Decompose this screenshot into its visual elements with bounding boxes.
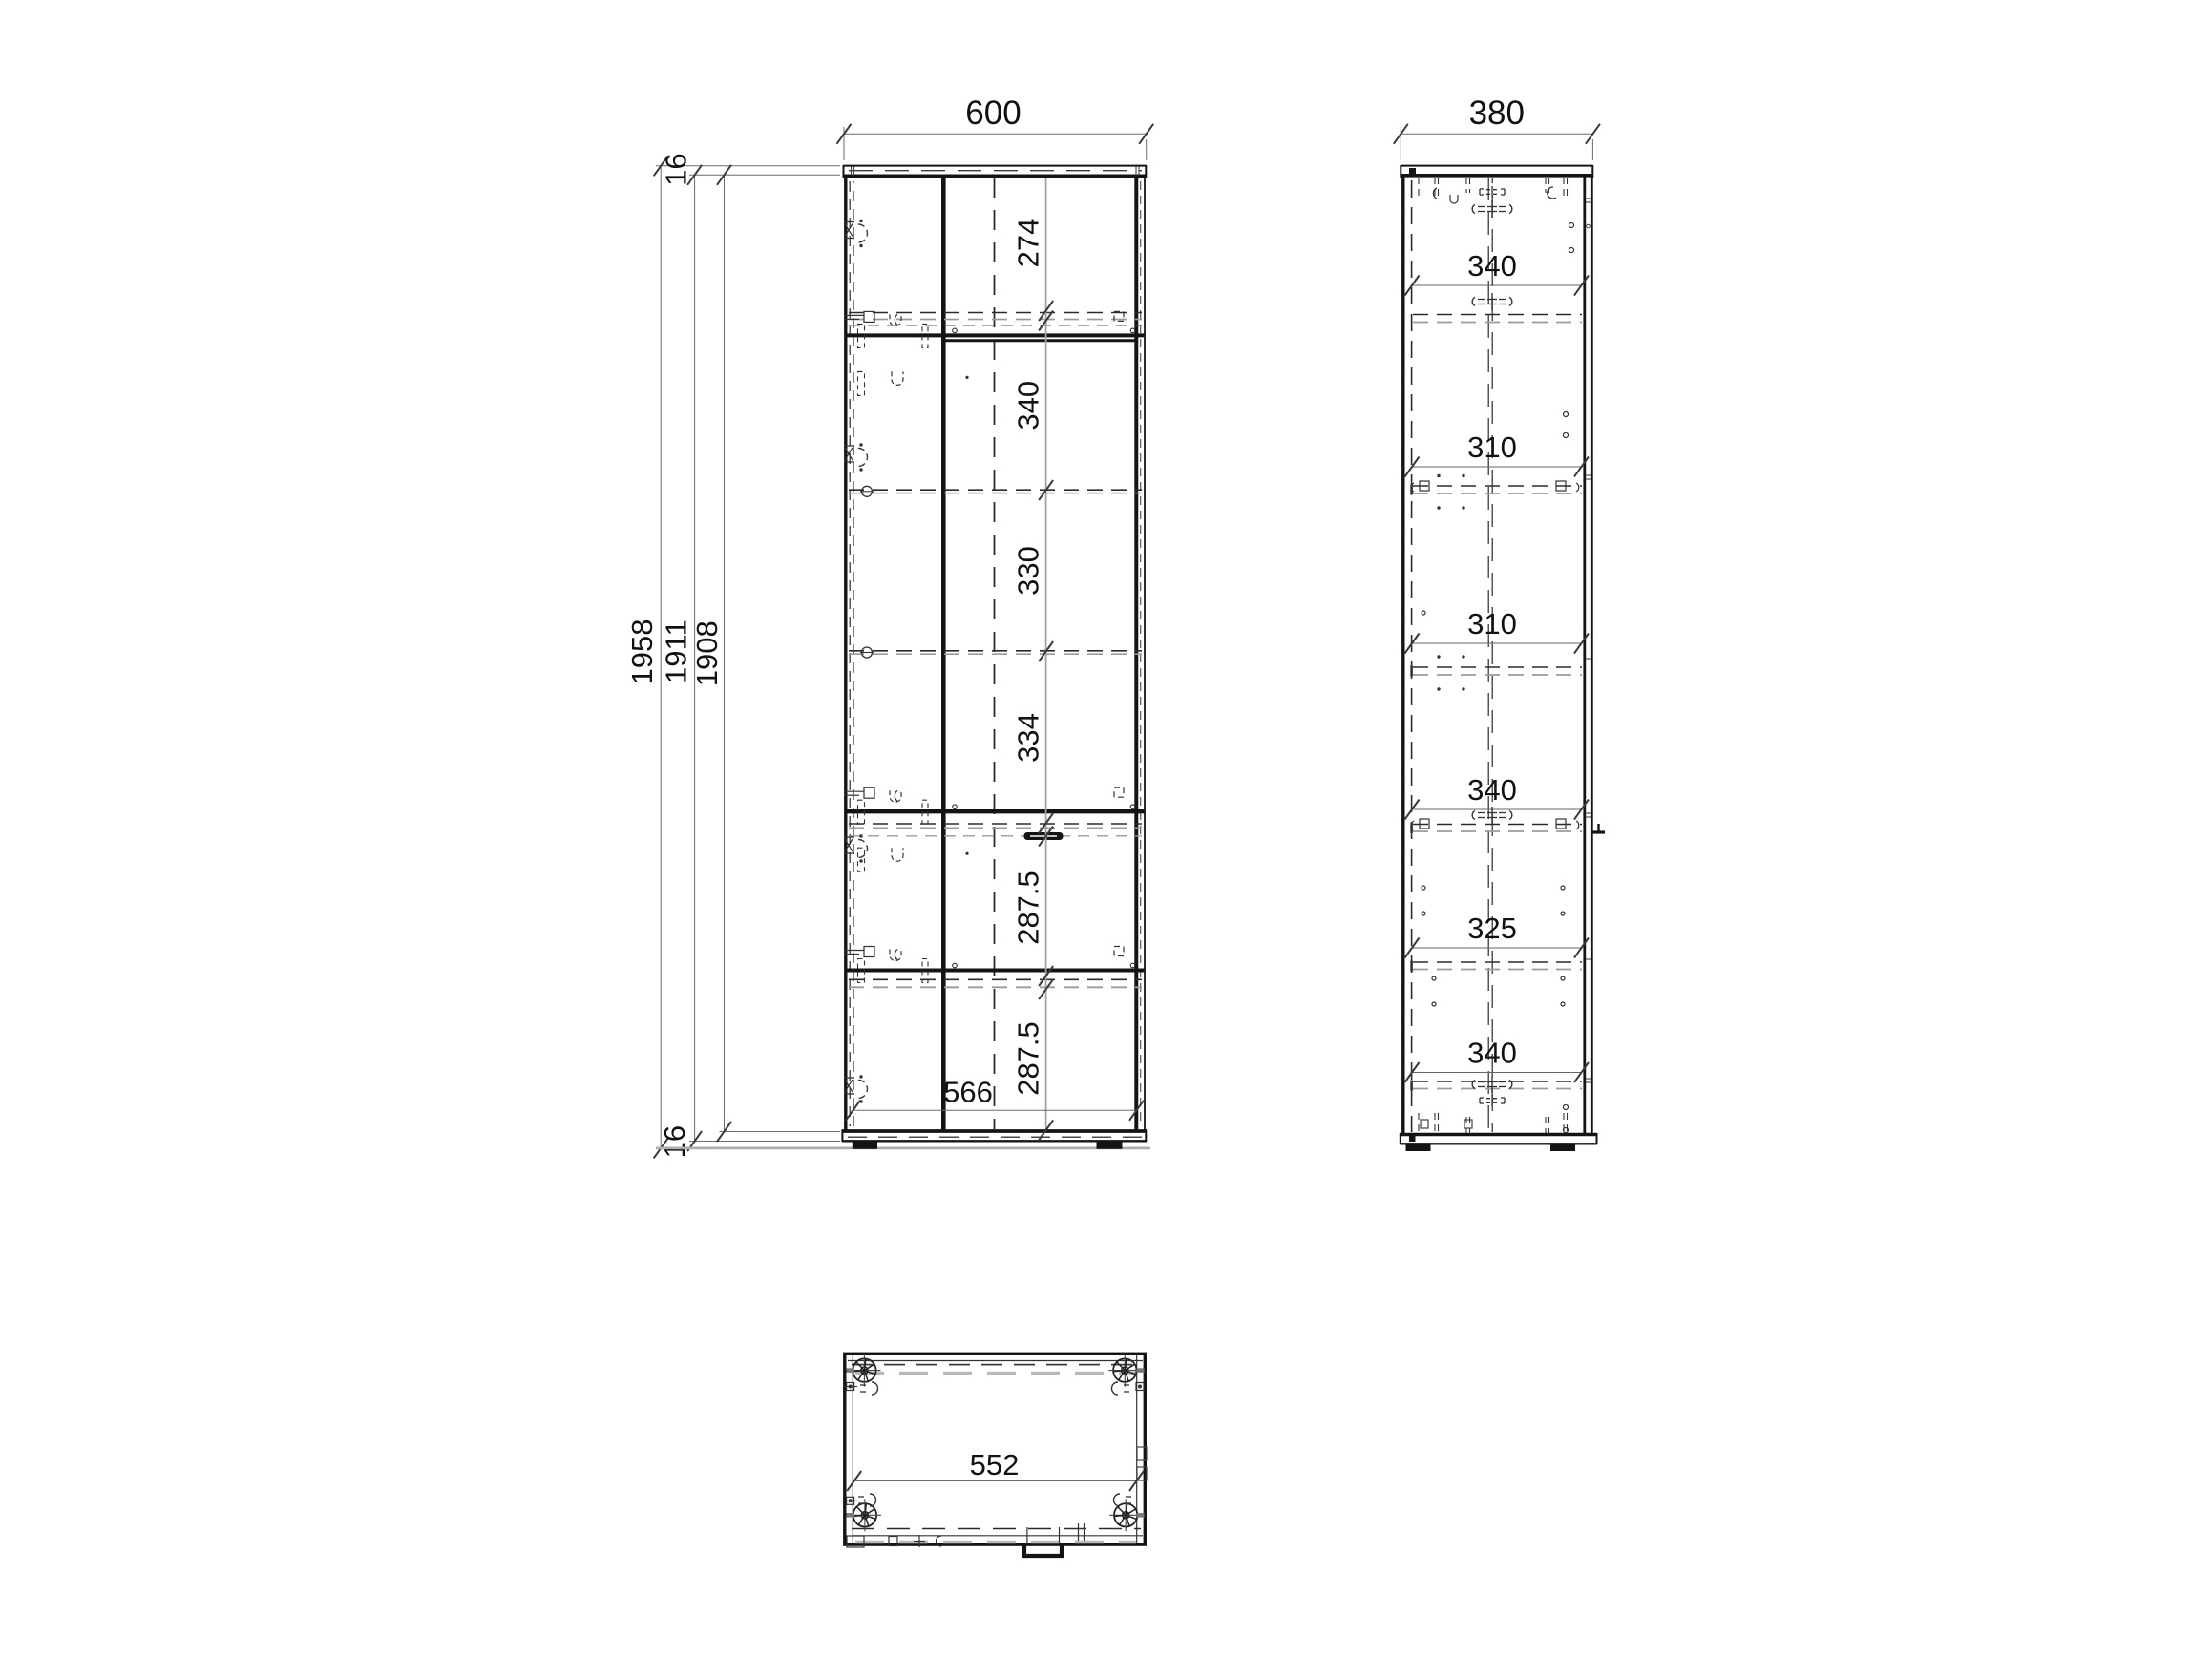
- svg-text:16: 16: [660, 153, 693, 185]
- svg-text:340: 340: [1467, 1037, 1517, 1070]
- svg-text:552: 552: [970, 1448, 1020, 1481]
- svg-text:1958: 1958: [625, 619, 659, 685]
- svg-text:334: 334: [1012, 713, 1045, 763]
- svg-text:600: 600: [965, 94, 1021, 132]
- svg-text:274: 274: [1012, 219, 1045, 268]
- svg-text:340: 340: [1467, 249, 1517, 283]
- svg-text:325: 325: [1467, 912, 1517, 945]
- svg-text:340: 340: [1467, 773, 1517, 807]
- svg-text:340: 340: [1012, 381, 1045, 430]
- svg-text:16: 16: [658, 1125, 691, 1158]
- svg-text:310: 310: [1467, 607, 1517, 640]
- svg-text:287.5: 287.5: [1012, 1021, 1045, 1096]
- svg-text:1911: 1911: [660, 619, 693, 683]
- svg-text:287.5: 287.5: [1012, 871, 1045, 945]
- svg-text:566: 566: [943, 1076, 993, 1109]
- svg-text:1908: 1908: [690, 620, 724, 686]
- svg-text:380: 380: [1469, 94, 1525, 132]
- svg-text:310: 310: [1467, 430, 1517, 464]
- svg-text:330: 330: [1012, 546, 1045, 596]
